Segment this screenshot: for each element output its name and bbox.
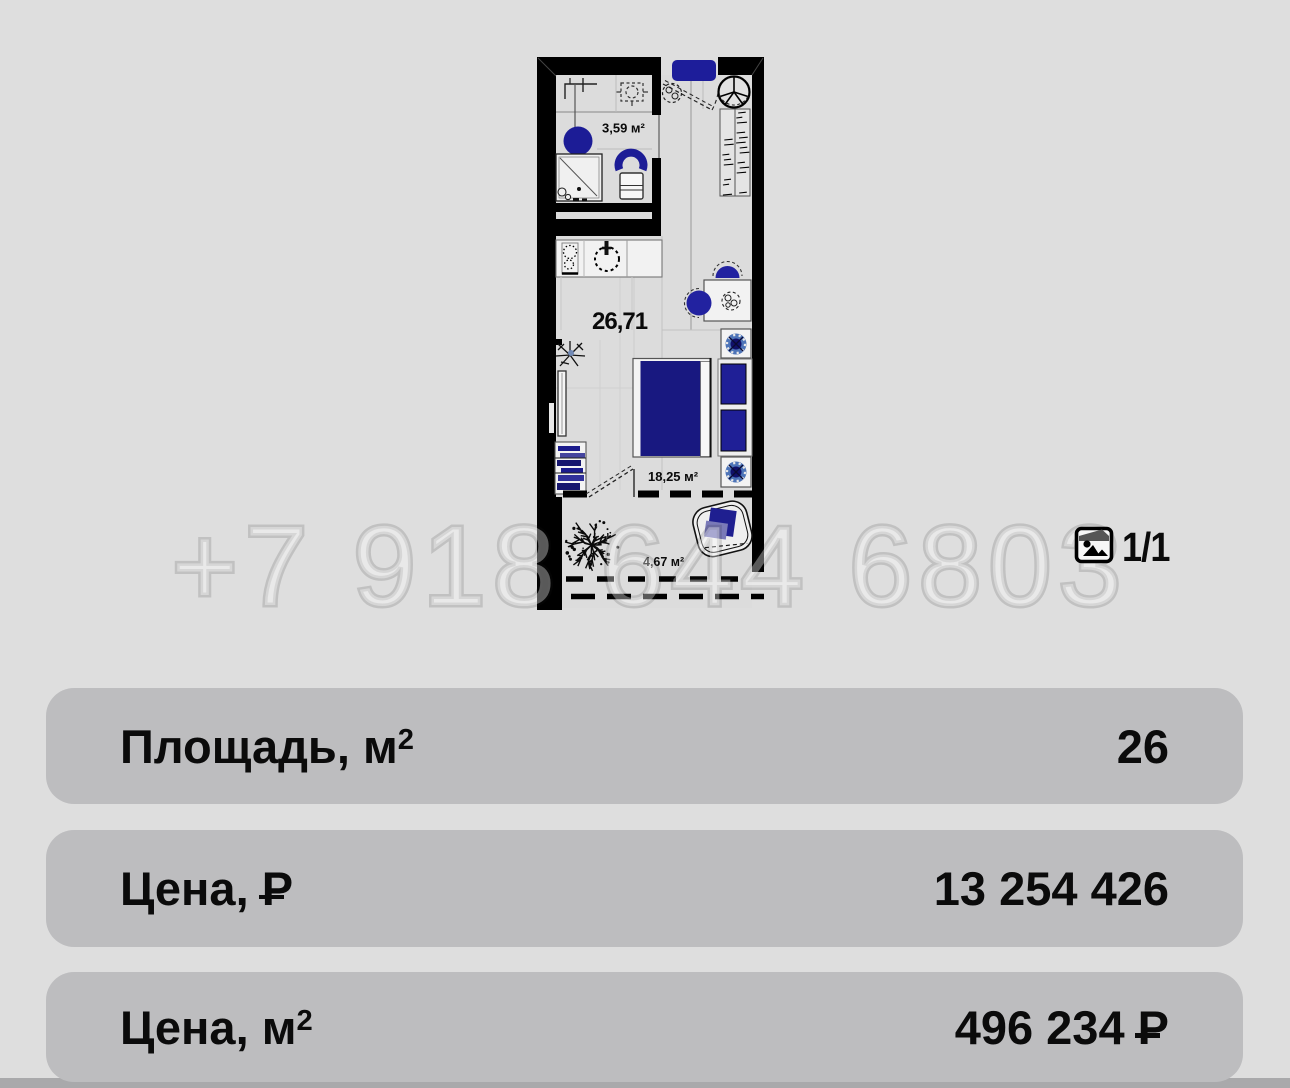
svg-text:+7 918 644 6803: +7 918 644 6803 xyxy=(172,503,1128,629)
svg-text:18,25 м²: 18,25 м² xyxy=(648,469,699,484)
svg-text:26,71: 26,71 xyxy=(592,308,648,335)
svg-text:3,59 м²: 3,59 м² xyxy=(602,121,646,136)
